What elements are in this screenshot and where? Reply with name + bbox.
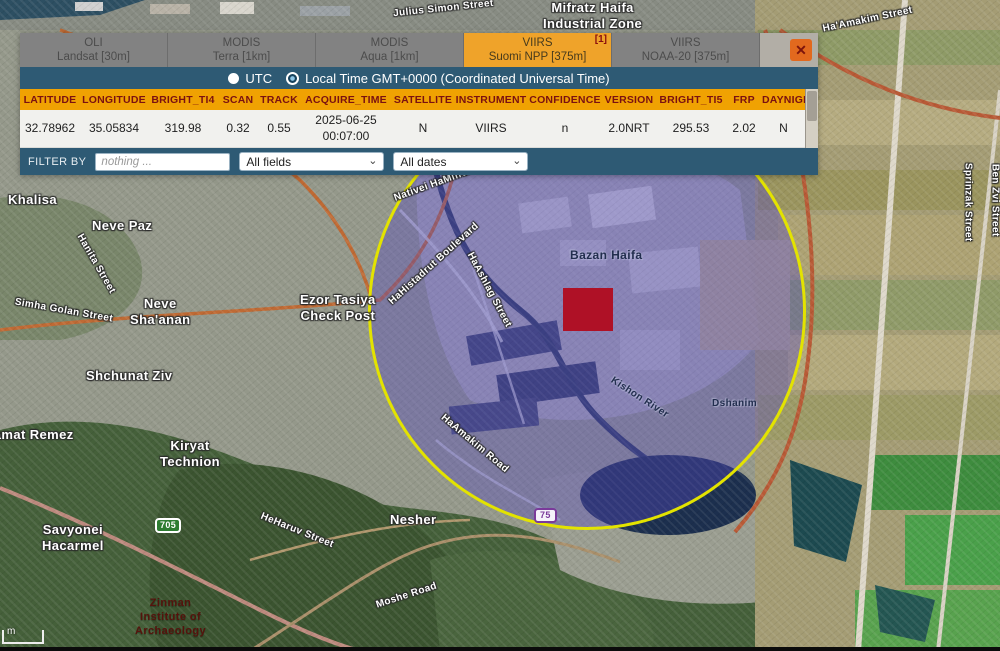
table-cell-bright-ti4: 319.98 bbox=[148, 121, 218, 137]
date-select[interactable]: All dates ⌄ bbox=[393, 152, 528, 171]
table-cell-scan: 0.32 bbox=[218, 121, 258, 137]
tab-viirs-suomi-npp-375m[interactable]: VIIRSSuomi NPP [375m][1] bbox=[464, 33, 612, 67]
table-cell-daynight: N bbox=[762, 121, 805, 137]
tab-count-badge: [1] bbox=[595, 34, 607, 47]
tab-label-line1: MODIS bbox=[371, 36, 409, 50]
column-header-version: VERSION bbox=[602, 94, 656, 106]
column-header-confidence: CONFIDENCE bbox=[528, 94, 602, 106]
tab-label-line2: Landsat [30m] bbox=[57, 50, 130, 64]
fire-data-popup: OLILandsat [30m]MODISTerra [1km]MODISAqu… bbox=[20, 33, 818, 175]
fire-table: LATITUDELONGITUDEBRIGHT_TI4SCANTRACKACQU… bbox=[20, 89, 805, 148]
column-header-satellite: SATELLITE bbox=[392, 94, 454, 106]
tab-bar: OLILandsat [30m]MODISTerra [1km]MODISAqu… bbox=[20, 33, 818, 67]
time-toggle-row: UTCLocal Time GMT+0000 (Coordinated Univ… bbox=[20, 67, 818, 89]
bottom-edge-bar bbox=[0, 647, 1000, 651]
filter-text-input[interactable] bbox=[95, 153, 230, 171]
radio-icon[interactable] bbox=[228, 73, 239, 84]
time-option-label: Local Time GMT+0000 (Coordinated Univers… bbox=[305, 71, 610, 86]
field-select-value: All fields bbox=[246, 155, 291, 169]
tab-label-line2: Terra [1km] bbox=[213, 50, 271, 64]
table-scrollbar[interactable] bbox=[805, 89, 818, 148]
table-cell-bright-ti5: 295.53 bbox=[656, 121, 726, 137]
tab-label-line1: MODIS bbox=[223, 36, 261, 50]
chevron-down-icon: ⌄ bbox=[512, 156, 521, 167]
chevron-down-icon: ⌄ bbox=[368, 156, 377, 167]
tab-label-line1: OLI bbox=[84, 36, 103, 50]
close-button[interactable]: ✕ bbox=[790, 39, 812, 61]
table-cell-version: 2.0NRT bbox=[602, 121, 656, 137]
tab-label-line1: VIIRS bbox=[522, 36, 552, 50]
tab-bar-tabs: OLILandsat [30m]MODISTerra [1km]MODISAqu… bbox=[20, 33, 760, 67]
tab-label-line2: NOAA-20 [375m] bbox=[642, 50, 730, 64]
tab-modis-terra-1km[interactable]: MODISTerra [1km] bbox=[168, 33, 316, 67]
close-icon: ✕ bbox=[795, 42, 807, 59]
tab-label-line2: Suomi NPP [375m] bbox=[489, 50, 587, 64]
tab-viirs-noaa-20-375m[interactable]: VIIRSNOAA-20 [375m] bbox=[612, 33, 760, 67]
column-header-bright-ti5: BRIGHT_TI5 bbox=[656, 94, 726, 106]
column-header-acquire-time: ACQUIRE_TIME bbox=[300, 94, 392, 106]
table-cell-instrument: VIIRS bbox=[454, 121, 528, 137]
table-cell-track: 0.55 bbox=[258, 121, 300, 137]
map-scale-bar: m bbox=[2, 630, 44, 644]
tab-oli-landsat-30m[interactable]: OLILandsat [30m] bbox=[20, 33, 168, 67]
table-cell-satellite: N bbox=[392, 121, 454, 137]
radio-icon[interactable] bbox=[286, 72, 299, 85]
scale-unit-label: m bbox=[7, 626, 15, 637]
column-header-track: TRACK bbox=[258, 94, 300, 106]
tab-label-line2: Aqua [1km] bbox=[360, 50, 418, 64]
filter-row: FILTER BY All fields ⌄ All dates ⌄ bbox=[20, 148, 818, 175]
column-header-longitude: LONGITUDE bbox=[80, 94, 148, 106]
table-cell-confidence: n bbox=[528, 121, 602, 137]
table-cell-acquire-time: 2025-06-25 00:07:00 bbox=[300, 113, 392, 144]
column-header-daynight: DAYNIGHT bbox=[762, 94, 805, 106]
column-header-instrument: INSTRUMENT bbox=[454, 94, 528, 106]
table-body: 32.7896235.05834319.980.320.552025-06-25… bbox=[20, 110, 805, 148]
table-header-row: LATITUDELONGITUDEBRIGHT_TI4SCANTRACKACQU… bbox=[20, 89, 805, 110]
time-option-local[interactable]: Local Time GMT+0000 (Coordinated Univers… bbox=[286, 71, 610, 86]
date-select-value: All dates bbox=[400, 155, 446, 169]
table-cell-longitude: 35.05834 bbox=[80, 121, 148, 137]
field-select[interactable]: All fields ⌄ bbox=[239, 152, 384, 171]
column-header-scan: SCAN bbox=[218, 94, 258, 106]
table-cell-latitude: 32.78962 bbox=[20, 121, 80, 137]
column-header-frp: FRP bbox=[726, 94, 762, 106]
time-option-label: UTC bbox=[245, 71, 272, 86]
tab-modis-aqua-1km[interactable]: MODISAqua [1km] bbox=[316, 33, 464, 67]
table-cell-frp: 2.02 bbox=[726, 121, 762, 137]
column-header-latitude: LATITUDE bbox=[20, 94, 80, 106]
filter-by-label: FILTER BY bbox=[28, 156, 86, 168]
time-option-utc[interactable]: UTC bbox=[228, 71, 272, 86]
column-header-bright-ti4: BRIGHT_TI4 bbox=[148, 94, 218, 106]
tab-close-zone: ✕ bbox=[760, 33, 818, 67]
scrollbar-thumb[interactable] bbox=[807, 91, 817, 121]
fire-detection-marker[interactable] bbox=[563, 288, 613, 331]
tab-label-line1: VIIRS bbox=[670, 36, 700, 50]
table-row: 32.7896235.05834319.980.320.552025-06-25… bbox=[20, 110, 805, 148]
fire-table-wrap: LATITUDELONGITUDEBRIGHT_TI4SCANTRACKACQU… bbox=[20, 89, 818, 148]
